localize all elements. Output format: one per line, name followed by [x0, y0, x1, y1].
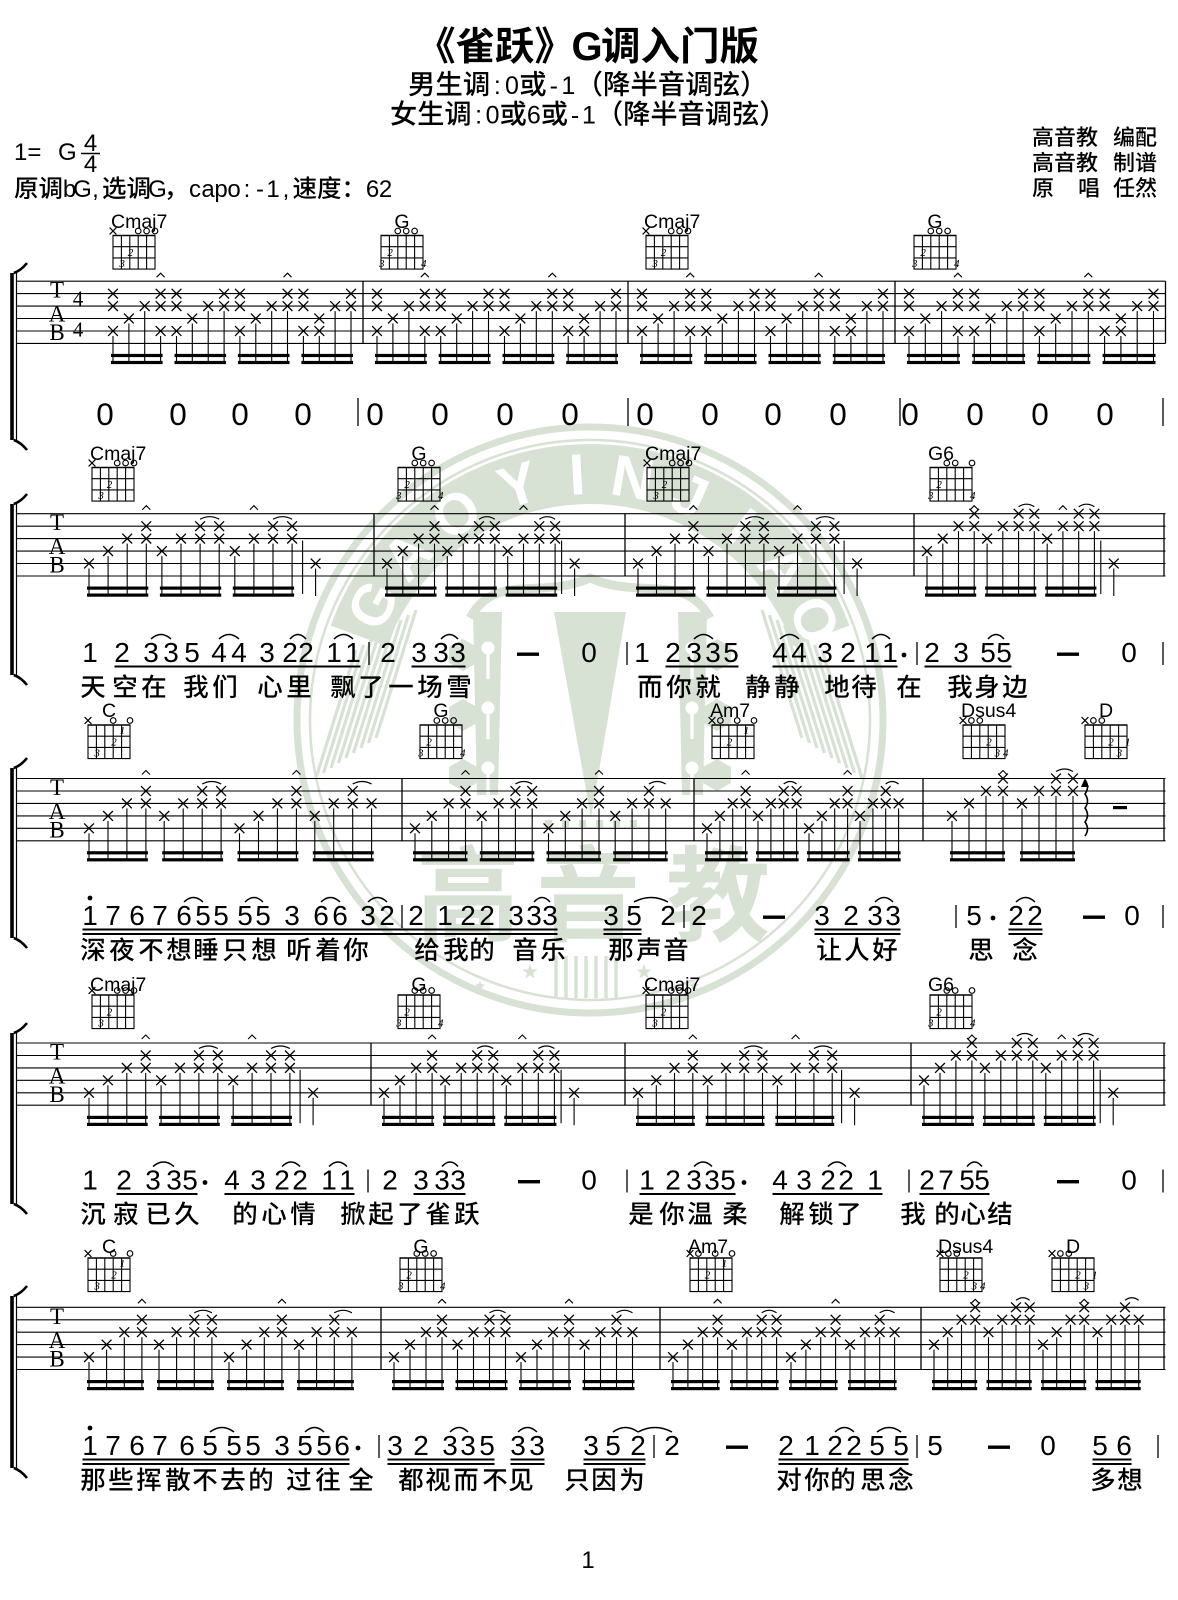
- svg-text:3: 3: [1083, 1281, 1090, 1293]
- svg-text:3: 3: [885, 900, 901, 931]
- svg-text:3: 3: [395, 1018, 402, 1030]
- svg-text:T: T: [50, 1040, 64, 1065]
- svg-text:3: 3: [651, 1018, 658, 1030]
- svg-text:2: 2: [107, 479, 113, 491]
- svg-text:5: 5: [626, 900, 642, 931]
- svg-text:0: 0: [764, 396, 782, 432]
- svg-text:1: 1: [82, 900, 98, 931]
- svg-text:2: 2: [404, 1006, 410, 1018]
- svg-text:p: p: [214, 176, 227, 203]
- svg-text:4: 4: [460, 748, 466, 760]
- svg-text:B: B: [49, 320, 64, 345]
- svg-text:3: 3: [686, 637, 702, 668]
- svg-text:Cmaj7: Cmaj7: [111, 211, 167, 233]
- svg-text:5: 5: [202, 1430, 218, 1461]
- svg-text:Am7: Am7: [710, 700, 750, 722]
- svg-text:0: 0: [829, 396, 847, 432]
- svg-text:0: 0: [294, 396, 312, 432]
- svg-text:3: 3: [796, 1165, 812, 1196]
- svg-text:2: 2: [1008, 900, 1024, 931]
- svg-text:1: 1: [120, 1258, 126, 1270]
- svg-text:3: 3: [450, 1165, 466, 1196]
- svg-text:C: C: [102, 1236, 116, 1258]
- svg-text:1: 1: [339, 1165, 355, 1196]
- svg-text:0: 0: [581, 1165, 597, 1196]
- svg-text:-: -: [256, 176, 264, 203]
- svg-text:3: 3: [97, 490, 104, 502]
- svg-text:2: 2: [107, 1006, 113, 1018]
- svg-text:3: 3: [704, 1165, 720, 1196]
- svg-text:0: 0: [486, 102, 500, 130]
- svg-text:3: 3: [284, 900, 300, 931]
- svg-text:2: 2: [1075, 1269, 1081, 1281]
- svg-text:3: 3: [460, 1430, 476, 1461]
- svg-text:T: T: [50, 1304, 64, 1329]
- svg-text:4: 4: [980, 1281, 986, 1293]
- svg-text:Am7: Am7: [688, 1236, 728, 1258]
- svg-text:3: 3: [93, 1281, 100, 1293]
- svg-text:2: 2: [387, 247, 393, 259]
- svg-text:G: G: [413, 1236, 428, 1258]
- svg-text:2: 2: [111, 1269, 117, 1281]
- svg-text:2: 2: [840, 637, 856, 668]
- svg-text:1: 1: [82, 1430, 98, 1461]
- svg-text:2: 2: [1027, 900, 1043, 931]
- svg-text:0: 0: [701, 396, 719, 432]
- svg-text:3: 3: [395, 490, 402, 502]
- svg-text:G: G: [927, 211, 942, 233]
- svg-text:1: 1: [804, 1430, 820, 1461]
- svg-text:1: 1: [345, 637, 361, 668]
- svg-text:2: 2: [426, 736, 432, 748]
- svg-text:3: 3: [97, 1018, 104, 1030]
- svg-text:3: 3: [411, 637, 427, 668]
- svg-text:Cmaj7: Cmaj7: [90, 443, 146, 465]
- svg-text:1: 1: [882, 637, 898, 668]
- svg-text:1: 1: [326, 637, 342, 668]
- svg-text:Cmaj7: Cmaj7: [644, 211, 700, 233]
- svg-text:D: D: [1066, 1236, 1080, 1258]
- svg-text:1: 1: [82, 1165, 98, 1196]
- svg-text:3: 3: [971, 1281, 978, 1293]
- svg-text:G: G: [433, 700, 448, 722]
- svg-text:6: 6: [179, 1430, 195, 1461]
- svg-text:4: 4: [772, 1165, 788, 1196]
- svg-text:1: 1: [581, 1547, 594, 1574]
- svg-text:6: 6: [313, 900, 329, 931]
- svg-text:2: 2: [843, 900, 859, 931]
- svg-text:1: 1: [867, 1165, 883, 1196]
- svg-text:2: 2: [1108, 736, 1114, 748]
- svg-text::: :: [475, 102, 482, 130]
- svg-text:5: 5: [182, 1165, 198, 1196]
- svg-text:4: 4: [211, 637, 227, 668]
- svg-text:2: 2: [382, 1165, 398, 1196]
- svg-text:,: ,: [92, 176, 99, 203]
- svg-text:5: 5: [996, 637, 1012, 668]
- svg-text:1: 1: [582, 102, 596, 130]
- svg-text:1: 1: [561, 72, 575, 100]
- svg-text:2: 2: [660, 900, 676, 931]
- svg-text:2: 2: [665, 637, 681, 668]
- svg-text:3: 3: [686, 1165, 702, 1196]
- svg-text:1: 1: [634, 637, 650, 668]
- svg-text:G6: G6: [928, 443, 954, 465]
- svg-text:2: 2: [936, 1006, 942, 1018]
- svg-text:4: 4: [438, 490, 444, 502]
- svg-text:1: 1: [82, 637, 98, 668]
- svg-text:7: 7: [152, 1430, 168, 1461]
- svg-text:6: 6: [332, 900, 348, 931]
- svg-text:4: 4: [772, 637, 788, 668]
- svg-text:2: 2: [924, 637, 940, 668]
- svg-text:2: 2: [661, 247, 667, 259]
- svg-text:5: 5: [723, 637, 739, 668]
- svg-text:7: 7: [105, 1430, 121, 1461]
- svg-text::: :: [244, 176, 251, 203]
- svg-text:3: 3: [927, 490, 934, 502]
- svg-text:4: 4: [84, 151, 97, 178]
- svg-text:3: 3: [250, 1165, 266, 1196]
- svg-text:3: 3: [994, 748, 1001, 760]
- svg-text:3: 3: [417, 748, 424, 760]
- svg-text:0: 0: [561, 396, 579, 432]
- svg-text:2: 2: [460, 900, 476, 931]
- svg-text:G: G: [411, 443, 426, 465]
- svg-text:B: B: [49, 1082, 64, 1107]
- svg-text:0: 0: [1031, 396, 1049, 432]
- svg-text:1: 1: [722, 1258, 728, 1270]
- svg-text:3: 3: [927, 1018, 934, 1030]
- svg-text:2: 2: [661, 1006, 667, 1018]
- svg-text:3: 3: [143, 637, 159, 668]
- svg-text:G: G: [73, 176, 92, 203]
- svg-text:Cmaj7: Cmaj7: [645, 443, 701, 465]
- svg-text:3: 3: [274, 1430, 290, 1461]
- svg-text:7: 7: [152, 900, 168, 931]
- svg-text:5: 5: [213, 900, 229, 931]
- svg-text:I: I: [567, 442, 587, 508]
- svg-text:2: 2: [379, 900, 395, 931]
- svg-text:3: 3: [378, 258, 385, 270]
- svg-text:0: 0: [636, 396, 654, 432]
- svg-text:G: G: [148, 176, 167, 203]
- svg-text:1: 1: [120, 725, 126, 737]
- svg-text:2: 2: [282, 637, 298, 668]
- svg-text:2: 2: [111, 736, 117, 748]
- svg-text:7: 7: [938, 1165, 954, 1196]
- svg-text:0: 0: [901, 396, 919, 432]
- svg-text:3: 3: [145, 1165, 161, 1196]
- svg-text:5: 5: [1092, 1430, 1108, 1461]
- svg-text:4: 4: [231, 637, 247, 668]
- svg-text:2: 2: [778, 1430, 794, 1461]
- svg-text:-: -: [571, 102, 579, 130]
- svg-text:5: 5: [316, 1430, 332, 1461]
- svg-text:7: 7: [105, 900, 121, 931]
- svg-text:2: 2: [664, 1430, 680, 1461]
- svg-text:3: 3: [542, 900, 558, 931]
- svg-text:6: 6: [527, 102, 541, 130]
- svg-text:2: 2: [292, 1165, 308, 1196]
- svg-text:2: 2: [479, 900, 495, 931]
- svg-text:5: 5: [245, 1430, 261, 1461]
- svg-text:2: 2: [920, 247, 926, 259]
- svg-text:2: 2: [820, 1165, 836, 1196]
- svg-text:5: 5: [720, 1165, 736, 1196]
- svg-text:o: o: [227, 176, 240, 203]
- svg-text:4: 4: [73, 318, 84, 342]
- svg-text:4: 4: [791, 637, 807, 668]
- svg-text:T: T: [50, 278, 64, 303]
- svg-text:0: 0: [1040, 1430, 1056, 1461]
- svg-text:2: 2: [727, 736, 733, 748]
- svg-text:3: 3: [652, 490, 659, 502]
- svg-text:2: 2: [380, 637, 396, 668]
- svg-text:5: 5: [966, 900, 982, 931]
- svg-text:6: 6: [366, 176, 379, 203]
- svg-text:0: 0: [1121, 637, 1137, 668]
- svg-text:0: 0: [505, 72, 519, 100]
- svg-text:2: 2: [298, 637, 314, 668]
- svg-text:5: 5: [479, 1430, 495, 1461]
- svg-text:5: 5: [255, 900, 271, 931]
- svg-text::: :: [494, 72, 501, 100]
- svg-text:3: 3: [118, 258, 125, 270]
- svg-text:3: 3: [1116, 748, 1123, 760]
- svg-text:T: T: [50, 775, 64, 800]
- svg-text:3: 3: [166, 1165, 182, 1196]
- svg-text:3: 3: [397, 1281, 404, 1293]
- svg-text:5: 5: [297, 1430, 313, 1461]
- svg-text:3: 3: [433, 637, 449, 668]
- svg-text:D: D: [1099, 700, 1113, 722]
- svg-text:1: 1: [437, 900, 453, 931]
- svg-text:T: T: [50, 510, 64, 535]
- svg-text:1=: 1=: [14, 139, 41, 166]
- svg-text:C: C: [102, 700, 116, 722]
- svg-text:3: 3: [953, 637, 969, 668]
- svg-text:0: 0: [231, 396, 249, 432]
- svg-text:5: 5: [237, 900, 253, 931]
- svg-text:2: 2: [963, 1269, 969, 1281]
- svg-text:1: 1: [321, 1165, 337, 1196]
- svg-text:5: 5: [893, 1430, 909, 1461]
- svg-text:0: 0: [96, 396, 114, 432]
- svg-text:0: 0: [966, 396, 984, 432]
- svg-text:5: 5: [974, 1165, 990, 1196]
- svg-text:2: 2: [379, 176, 392, 203]
- svg-text:0: 0: [366, 396, 384, 432]
- svg-text:3: 3: [387, 1430, 403, 1461]
- svg-text:-: -: [550, 72, 558, 100]
- svg-text:2: 2: [274, 1165, 290, 1196]
- svg-text:6: 6: [129, 900, 145, 931]
- svg-text:3: 3: [434, 1165, 450, 1196]
- svg-text:0: 0: [496, 396, 514, 432]
- svg-text:G: G: [571, 25, 602, 69]
- svg-text:2: 2: [846, 1430, 862, 1461]
- svg-text:5: 5: [605, 1430, 621, 1461]
- svg-text:2: 2: [691, 900, 707, 931]
- svg-text:2: 2: [662, 479, 668, 491]
- svg-text:3: 3: [259, 637, 275, 668]
- svg-text:0: 0: [431, 396, 449, 432]
- svg-text:B: B: [49, 1346, 64, 1371]
- svg-text:3: 3: [814, 900, 830, 931]
- svg-text:3: 3: [651, 258, 658, 270]
- svg-text:1: 1: [266, 176, 279, 203]
- svg-text:5: 5: [226, 1430, 242, 1461]
- svg-text:3: 3: [526, 900, 542, 931]
- svg-text:B: B: [49, 818, 64, 843]
- svg-text:4: 4: [73, 287, 84, 311]
- svg-text:2: 2: [114, 637, 130, 668]
- svg-text:3: 3: [360, 900, 376, 931]
- svg-text:,: ,: [283, 176, 290, 203]
- svg-text:4: 4: [970, 1018, 976, 1030]
- svg-text:2: 2: [936, 479, 942, 491]
- svg-text:6: 6: [1116, 1430, 1132, 1461]
- svg-text:a: a: [201, 176, 215, 203]
- svg-text:4: 4: [421, 258, 427, 270]
- svg-text:5: 5: [184, 637, 200, 668]
- svg-text:3: 3: [603, 900, 619, 931]
- svg-text:3: 3: [450, 637, 466, 668]
- svg-text:2: 2: [838, 1165, 854, 1196]
- svg-text:3: 3: [867, 900, 883, 931]
- svg-text:2: 2: [404, 479, 410, 491]
- svg-text:4: 4: [224, 1165, 240, 1196]
- svg-text:1: 1: [864, 637, 880, 668]
- svg-text:0: 0: [581, 637, 597, 668]
- svg-text:6: 6: [334, 1430, 350, 1461]
- svg-text:2: 2: [408, 900, 424, 931]
- svg-text:0: 0: [1121, 1165, 1137, 1196]
- svg-text:6: 6: [129, 1430, 145, 1461]
- svg-text:4: 4: [1003, 748, 1009, 760]
- svg-text:B: B: [49, 553, 64, 578]
- svg-text:6: 6: [176, 900, 192, 931]
- svg-text:0: 0: [1096, 396, 1114, 432]
- svg-text:2: 2: [128, 247, 134, 259]
- svg-text:1: 1: [744, 725, 750, 737]
- svg-text:5: 5: [195, 900, 211, 931]
- svg-text:2: 2: [827, 1430, 843, 1461]
- svg-text:5: 5: [927, 1430, 943, 1461]
- svg-text:3: 3: [911, 258, 918, 270]
- svg-text:3: 3: [413, 1165, 429, 1196]
- svg-text:4: 4: [440, 1281, 446, 1293]
- svg-text:G: G: [58, 139, 77, 166]
- svg-text:5: 5: [959, 1165, 975, 1196]
- svg-text:3: 3: [442, 1430, 458, 1461]
- svg-text:1: 1: [1125, 736, 1131, 748]
- svg-text:3: 3: [508, 900, 524, 931]
- svg-text:5: 5: [980, 637, 996, 668]
- svg-text:0: 0: [1124, 900, 1140, 931]
- svg-text:2: 2: [986, 736, 992, 748]
- svg-text:2: 2: [406, 1269, 412, 1281]
- svg-text:1: 1: [639, 1165, 655, 1196]
- svg-text:3: 3: [163, 637, 179, 668]
- svg-text:3: 3: [583, 1430, 599, 1461]
- svg-text:2: 2: [116, 1165, 132, 1196]
- svg-text:2: 2: [630, 1430, 646, 1461]
- svg-text:G: G: [394, 211, 409, 233]
- svg-text:3: 3: [93, 748, 100, 760]
- svg-text:3: 3: [510, 1430, 526, 1461]
- svg-text:3: 3: [817, 637, 833, 668]
- svg-text:4: 4: [970, 490, 976, 502]
- svg-text:4: 4: [438, 1018, 444, 1030]
- svg-text:4: 4: [954, 258, 960, 270]
- svg-text:2: 2: [919, 1165, 935, 1196]
- svg-text:3: 3: [529, 1430, 545, 1461]
- svg-text:1: 1: [1092, 1269, 1098, 1281]
- svg-text:2: 2: [705, 1269, 711, 1281]
- svg-text:0: 0: [169, 396, 187, 432]
- svg-text:5: 5: [869, 1430, 885, 1461]
- svg-text:G6: G6: [928, 974, 954, 996]
- svg-text:3: 3: [705, 637, 721, 668]
- svg-text:2: 2: [665, 1165, 681, 1196]
- svg-text:2: 2: [413, 1430, 429, 1461]
- svg-text:c: c: [189, 176, 201, 203]
